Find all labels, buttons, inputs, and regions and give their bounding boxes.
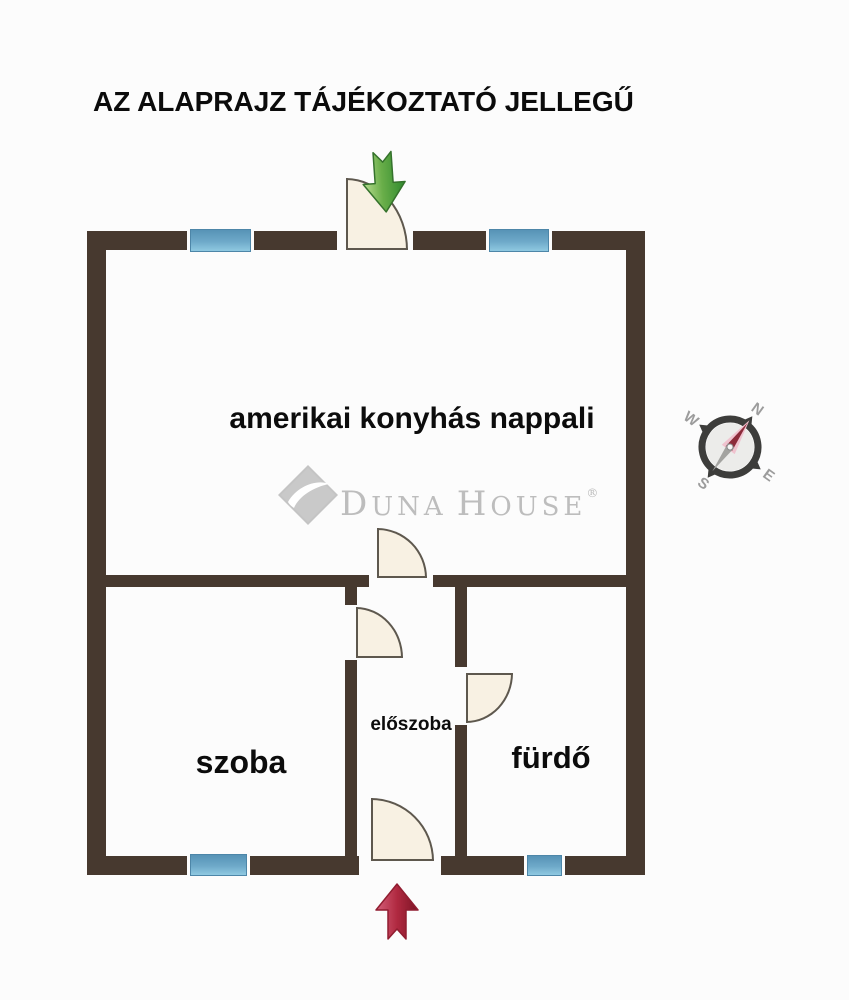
duna-house-diamond-icon xyxy=(277,464,339,526)
wordmark-letter: D xyxy=(340,484,371,524)
wordmark-letter: H xyxy=(457,484,491,524)
window-bathroom xyxy=(527,855,562,876)
compass-south-label: S xyxy=(694,474,712,494)
duna-house-wordmark: DUNAHOUSE® xyxy=(340,470,600,516)
bottom-arrow-up-icon xyxy=(375,883,419,941)
window-living-left xyxy=(190,229,251,252)
wall-left xyxy=(87,231,106,875)
compass-east-label: E xyxy=(759,466,777,486)
wordmark-letters: UNA xyxy=(371,492,446,522)
door-swing-bedroom xyxy=(356,607,403,658)
registered-mark: ® xyxy=(586,486,598,500)
compass-west-label: W xyxy=(680,408,702,431)
window-living-right xyxy=(489,229,549,252)
door-swing-entrance-bottom xyxy=(371,798,434,861)
room-label-hall: előszoba xyxy=(351,714,471,736)
door-swing-bathroom xyxy=(466,673,513,723)
compass-north-label: N xyxy=(748,399,767,419)
room-label-bathroom: fürdő xyxy=(491,740,611,776)
wall-middle xyxy=(106,575,626,587)
window-bedroom xyxy=(190,854,247,876)
compass-rose-icon: N E S W xyxy=(671,388,789,506)
wordmark-letters: OUSE xyxy=(490,492,586,522)
wall-right xyxy=(626,231,645,875)
door-swing-living-hall xyxy=(377,528,427,578)
disclaimer-title: AZ ALAPRAJZ TÁJÉKOZTATÓ JELLEGŰ xyxy=(93,86,793,118)
room-label-bedroom: szoba xyxy=(150,744,332,781)
entrance-arrow-down-icon xyxy=(359,147,409,214)
room-label-living: amerikai konyhás nappali xyxy=(200,402,624,436)
